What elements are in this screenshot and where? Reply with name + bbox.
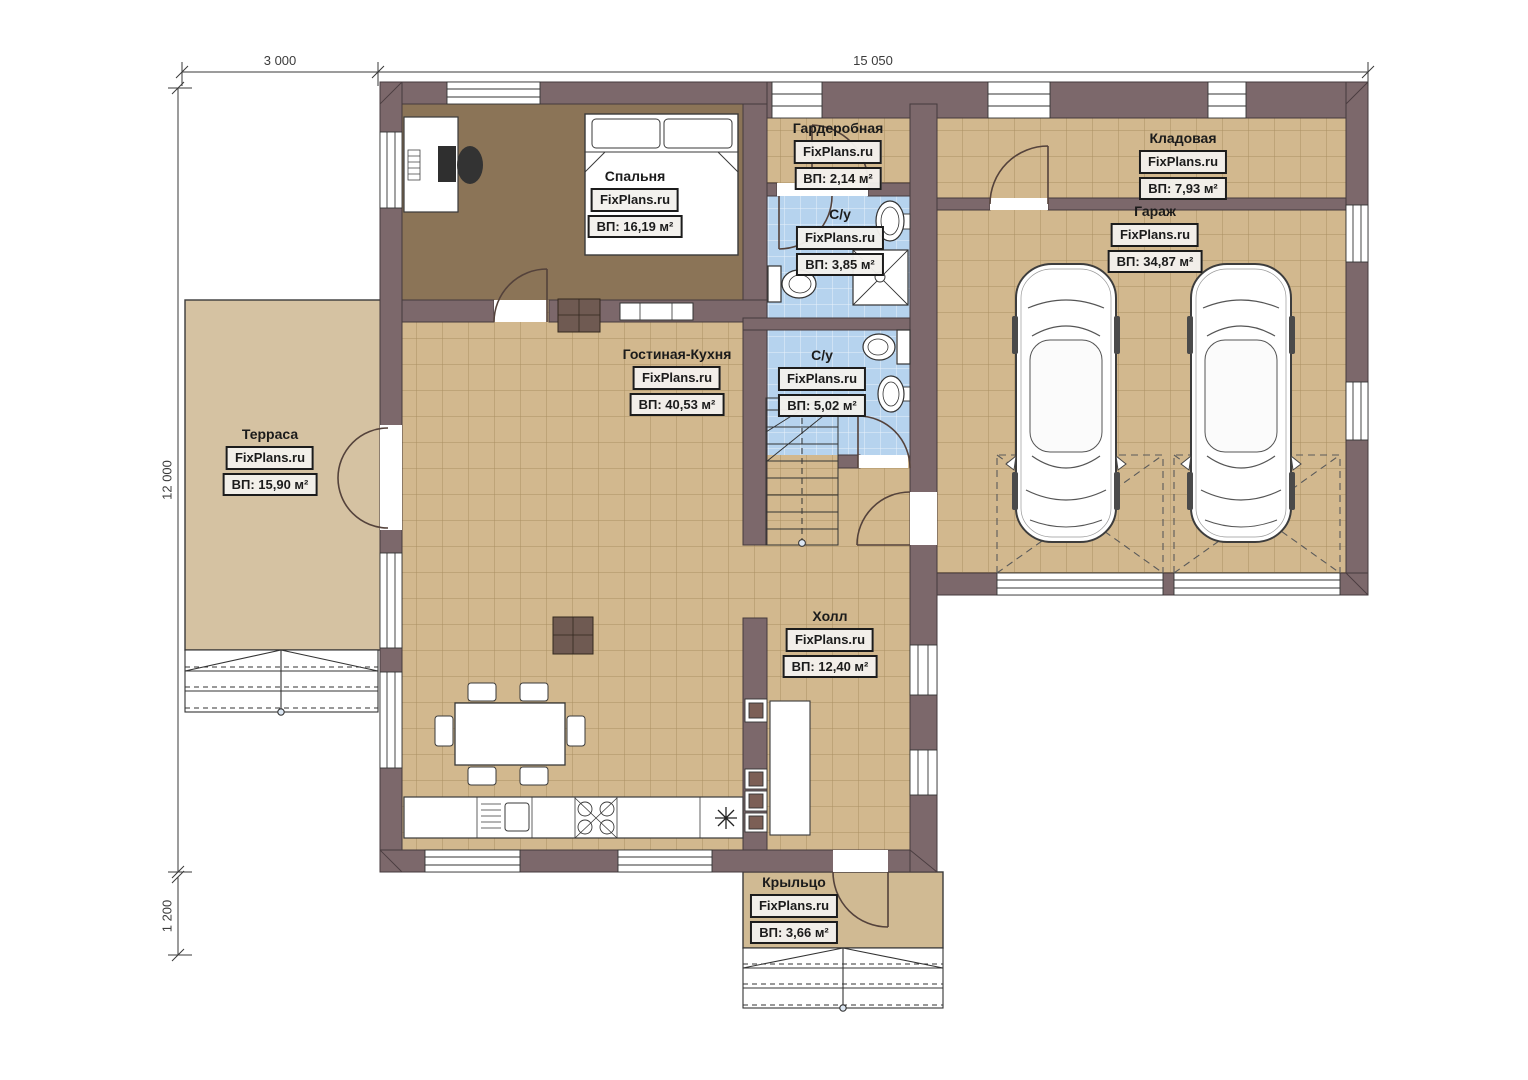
window bbox=[380, 132, 402, 208]
dim-terrace-width: 3 000 bbox=[264, 53, 297, 68]
area-box: ВП: 5,02 м² bbox=[778, 394, 866, 418]
room-name: Гардеробная bbox=[793, 120, 884, 136]
room-name: Терраса bbox=[242, 426, 298, 442]
hall-wardrobe-cabinet bbox=[770, 701, 810, 835]
window bbox=[910, 645, 937, 695]
room-name: Холл bbox=[812, 608, 847, 624]
dresser bbox=[620, 303, 693, 320]
window bbox=[380, 553, 402, 648]
room-label-bedroom: Спальня FixPlans.ru ВП: 16,19 м² bbox=[588, 168, 683, 238]
window bbox=[1208, 82, 1246, 118]
area-box: ВП: 15,90 м² bbox=[223, 473, 318, 497]
monitor-icon bbox=[438, 146, 456, 182]
brand-box: FixPlans.ru bbox=[591, 188, 679, 212]
area-box: ВП: 12,40 м² bbox=[783, 655, 878, 679]
window bbox=[1346, 205, 1368, 262]
window bbox=[380, 672, 402, 768]
window bbox=[1346, 382, 1368, 440]
room-label-living-kitchen: Гостиная-Кухня FixPlans.ru ВП: 40,53 м² bbox=[623, 346, 732, 416]
garage-gate bbox=[997, 573, 1163, 595]
area-box: ВП: 2,14 м² bbox=[794, 167, 882, 191]
brand-box: FixPlans.ru bbox=[786, 628, 874, 652]
room-label-hall: Холл FixPlans.ru ВП: 12,40 м² bbox=[783, 608, 878, 678]
window bbox=[447, 82, 540, 104]
brand-box: FixPlans.ru bbox=[633, 366, 721, 390]
kitchen-counter bbox=[404, 797, 743, 838]
room-name: С/у bbox=[829, 206, 851, 222]
area-box: ВП: 40,53 м² bbox=[630, 393, 725, 417]
brand-box: FixPlans.ru bbox=[750, 894, 838, 918]
floor-plan-page: 3 000 15 050 12 000 1 200 Спальня FixPla… bbox=[0, 0, 1528, 1080]
dim-house-depth: 12 000 bbox=[160, 460, 175, 500]
dim-house-width: 15 050 bbox=[853, 53, 893, 68]
room-label-storage: Кладовая FixPlans.ru ВП: 7,93 м² bbox=[1139, 130, 1227, 200]
room-label-bathroom-1: С/у FixPlans.ru ВП: 3,85 м² bbox=[796, 206, 884, 276]
room-name: Крыльцо bbox=[762, 874, 826, 890]
window bbox=[618, 850, 712, 872]
area-box: ВП: 3,66 м² bbox=[750, 921, 838, 945]
brand-box: FixPlans.ru bbox=[778, 367, 866, 391]
terrace-steps bbox=[185, 650, 378, 715]
fridge-star-icon bbox=[715, 807, 737, 829]
dim-porch-depth: 1 200 bbox=[160, 900, 175, 933]
brand-box: FixPlans.ru bbox=[1111, 223, 1199, 247]
chimney-block bbox=[558, 299, 600, 332]
area-box: ВП: 7,93 м² bbox=[1139, 177, 1227, 201]
room-label-garage: Гараж FixPlans.ru ВП: 34,87 м² bbox=[1108, 203, 1203, 273]
room-name: Гостиная-Кухня bbox=[623, 346, 732, 362]
porch-steps bbox=[743, 948, 943, 1011]
dining-table bbox=[455, 703, 565, 765]
area-box: ВП: 34,87 м² bbox=[1108, 250, 1203, 274]
chair-icon bbox=[457, 146, 483, 184]
room-name: Кладовая bbox=[1149, 130, 1216, 146]
room-label-wardrobe: Гардеробная FixPlans.ru ВП: 2,14 м² bbox=[793, 120, 884, 190]
room-name: Гараж bbox=[1134, 203, 1176, 219]
room-label-terrace: Терраса FixPlans.ru ВП: 15,90 м² bbox=[223, 426, 318, 496]
room-name: Спальня bbox=[605, 168, 665, 184]
brand-box: FixPlans.ru bbox=[226, 446, 314, 470]
brand-box: FixPlans.ru bbox=[794, 140, 882, 164]
window bbox=[772, 82, 822, 118]
window bbox=[425, 850, 520, 872]
room-label-porch: Крыльцо FixPlans.ru ВП: 3,66 м² bbox=[750, 874, 838, 944]
area-box: ВП: 16,19 м² bbox=[588, 215, 683, 239]
window bbox=[988, 82, 1050, 118]
brand-box: FixPlans.ru bbox=[796, 226, 884, 250]
window bbox=[910, 750, 937, 795]
kitchen-island bbox=[553, 617, 593, 654]
room-name: С/у bbox=[811, 347, 833, 363]
area-box: ВП: 3,85 м² bbox=[796, 253, 884, 277]
room-label-bathroom-2: С/у FixPlans.ru ВП: 5,02 м² bbox=[778, 347, 866, 417]
garage-gate bbox=[1174, 573, 1340, 595]
brand-box: FixPlans.ru bbox=[1139, 150, 1227, 174]
